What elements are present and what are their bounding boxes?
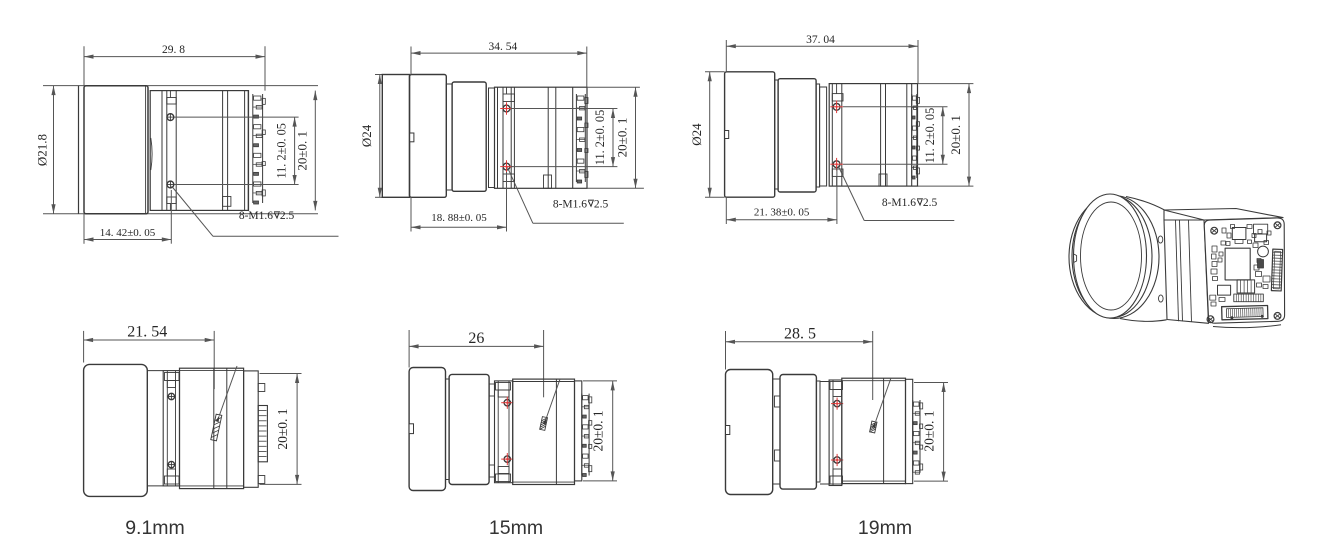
svg-text:11. 2±0. 05: 11. 2±0. 05 <box>923 108 937 163</box>
svg-text:2.5: 2.5 <box>594 198 609 210</box>
svg-text:21. 54: 21. 54 <box>127 324 167 341</box>
svg-text:20±0. 1: 20±0. 1 <box>294 131 309 171</box>
svg-text:11. 2±0. 05: 11. 2±0. 05 <box>275 123 289 178</box>
svg-text:37. 04: 37. 04 <box>806 34 835 46</box>
svg-text:26: 26 <box>468 330 484 347</box>
svg-text:11. 2±0. 05: 11. 2±0. 05 <box>593 110 607 165</box>
svg-text:2.5: 2.5 <box>923 197 938 209</box>
svg-text:20±0. 1: 20±0. 1 <box>922 410 937 451</box>
svg-text:20±0. 1: 20±0. 1 <box>948 115 963 155</box>
svg-text:Ø24: Ø24 <box>689 123 704 146</box>
svg-text:20±0. 1: 20±0. 1 <box>614 118 629 158</box>
svg-text:19mm: 19mm <box>858 517 912 539</box>
svg-text:9.1mm: 9.1mm <box>125 517 185 539</box>
svg-text:28. 5: 28. 5 <box>784 325 816 342</box>
svg-text:Ø24: Ø24 <box>359 124 374 147</box>
svg-text:20±0. 1: 20±0. 1 <box>275 408 290 449</box>
svg-text:20±0. 1: 20±0. 1 <box>591 410 606 451</box>
svg-text:34. 54: 34. 54 <box>489 41 518 53</box>
svg-text:8-M1.6: 8-M1.6 <box>553 198 587 210</box>
svg-text:18. 88±0. 05: 18. 88±0. 05 <box>431 212 487 224</box>
svg-text:2.5: 2.5 <box>280 210 295 222</box>
svg-text:15mm: 15mm <box>489 517 543 539</box>
svg-text:8-M1.6: 8-M1.6 <box>239 210 273 222</box>
svg-text:29. 8: 29. 8 <box>162 44 185 56</box>
svg-text:21. 38±0. 05: 21. 38±0. 05 <box>754 206 810 218</box>
svg-text:8-M1.6: 8-M1.6 <box>882 197 916 209</box>
svg-text:14. 42±0. 05: 14. 42±0. 05 <box>100 227 156 239</box>
svg-text:Ø21.8: Ø21.8 <box>35 134 50 166</box>
